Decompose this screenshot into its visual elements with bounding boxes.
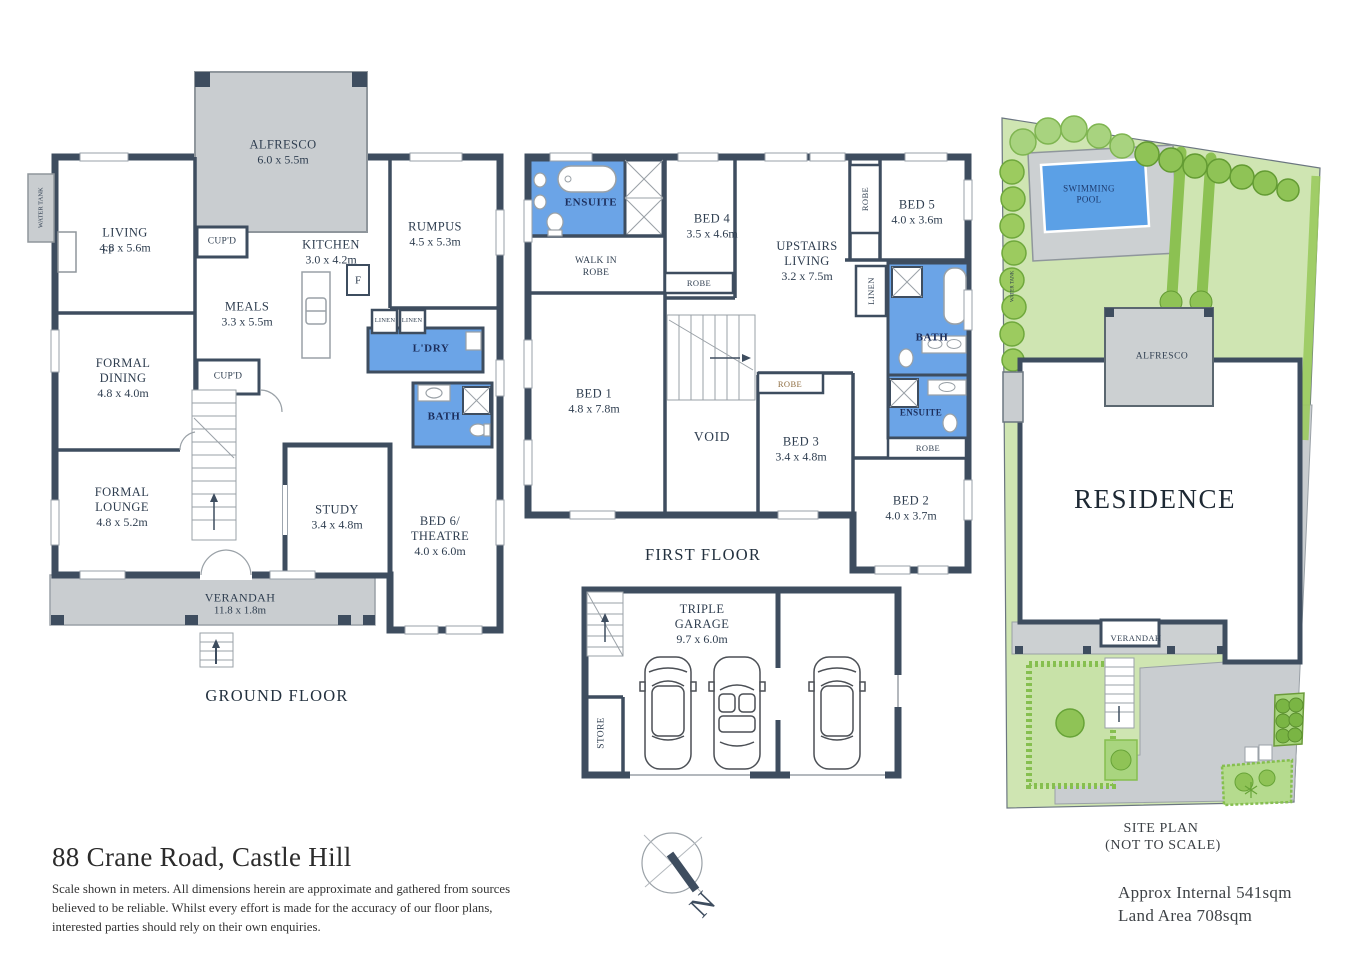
room-label-formal-dining: FORMAL DINING 4.8 x 4.0m — [91, 356, 155, 400]
label-linen-first: LINEN — [866, 277, 876, 305]
label-linen-left: LINEN — [375, 317, 396, 325]
room-label-verandah: VERANDAH 11.8 x 1.8m — [205, 590, 276, 617]
room-label-bed2: BED 2 4.0 x 3.7m — [885, 494, 936, 523]
label-robe-bed4: ROBE — [687, 278, 711, 288]
label-site-alfresco: ALFRESCO — [1136, 351, 1189, 362]
room-label-bed1: BED 1 4.8 x 7.8m — [568, 387, 619, 416]
room-label-kitchen: KITCHEN 3.0 x 4.2m — [302, 238, 360, 267]
disclaimer-text: Scale shown in meters. All dimensions he… — [52, 880, 530, 938]
label-cupboard-hall: CUP'D — [214, 371, 243, 382]
room-label-bed6: BED 6/ THEATRE 4.0 x 6.0m — [407, 514, 473, 558]
kitchen-island — [302, 272, 330, 358]
label-linen-right: LINEN — [402, 317, 423, 325]
room-label-garage: TRIPLE GARAGE 9.7 x 6.0m — [667, 602, 737, 646]
floorplan-page: ALFRESCO 6.0 x 5.5m LIVING 4.8 x 5.6m KI… — [0, 0, 1358, 960]
room-label-laundry: L'DRY — [413, 343, 450, 356]
room-label-ensuite-main: ENSUITE — [565, 197, 618, 210]
room-label-bed5: BED 5 4.0 x 3.6m — [891, 198, 942, 227]
approx-internal-area: Approx Internal 541sqm — [1118, 883, 1292, 903]
label-robe-bed5: ROBE — [860, 187, 870, 211]
label-site-verandah: VERANDAH — [1111, 633, 1162, 643]
room-label-bed3: BED 3 3.4 x 4.8m — [775, 435, 826, 464]
property-address: 88 Crane Road, Castle Hill — [52, 842, 352, 873]
label-robe-bed3: ROBE — [778, 379, 802, 389]
car-convertible — [709, 657, 765, 769]
site-plan-title-1: SITE PLAN — [1123, 821, 1198, 837]
ground-stairs — [192, 390, 236, 540]
garage-stairs — [587, 592, 623, 656]
room-label-bed4: BED 4 3.5 x 4.6m — [686, 212, 737, 241]
room-label-study: STUDY 3.4 x 4.8m — [311, 503, 362, 532]
first-floor-title: FIRST FLOOR — [645, 545, 761, 565]
label-fireplace: FP — [102, 245, 114, 258]
label-water-tank: WATER TANK — [37, 188, 44, 228]
label-cupboard-top: CUP'D — [208, 236, 237, 247]
room-label-rumpus: RUMPUS 4.5 x 5.3m — [408, 220, 462, 249]
site-stairs — [1105, 658, 1134, 728]
room-label-formal-lounge: FORMAL LOUNGE 4.8 x 5.2m — [90, 485, 154, 529]
room-label-first-bath: BATH — [916, 332, 949, 345]
site-plan-title-2: (NOT TO SCALE) — [1105, 838, 1221, 854]
site-plan — [995, 110, 1335, 822]
car-left — [640, 657, 696, 769]
room-label-ground-bath: BATH — [428, 411, 461, 424]
room-label-alfresco: ALFRESCO 6.0 x 5.5m — [249, 138, 316, 167]
label-residence: RESIDENCE — [1074, 484, 1236, 516]
land-area: Land Area 708sqm — [1118, 906, 1252, 926]
room-label-walk-in-robe: WALK IN ROBE — [575, 256, 617, 280]
garage-plan — [575, 580, 910, 790]
car-right — [809, 657, 865, 769]
room-label-void: VOID — [694, 429, 730, 445]
ground-floor-title: GROUND FLOOR — [205, 686, 348, 706]
fireplace — [58, 232, 76, 272]
room-label-ensuite2: ENSUITE — [900, 408, 942, 419]
first-stairs — [667, 315, 755, 400]
site-water-tank — [1003, 372, 1023, 422]
label-robe-bed2: ROBE — [916, 443, 940, 453]
room-label-upstairs-living: UPSTAIRS LIVING 3.2 x 7.5m — [770, 239, 844, 283]
label-fridge: F — [355, 275, 361, 288]
label-swimming-pool: SWIMMING POOL — [1053, 183, 1125, 204]
label-site-water-tank: WATER TANK — [1010, 272, 1016, 302]
label-store: STORE — [596, 717, 607, 748]
room-label-meals: MEALS 3.3 x 5.5m — [221, 300, 272, 329]
